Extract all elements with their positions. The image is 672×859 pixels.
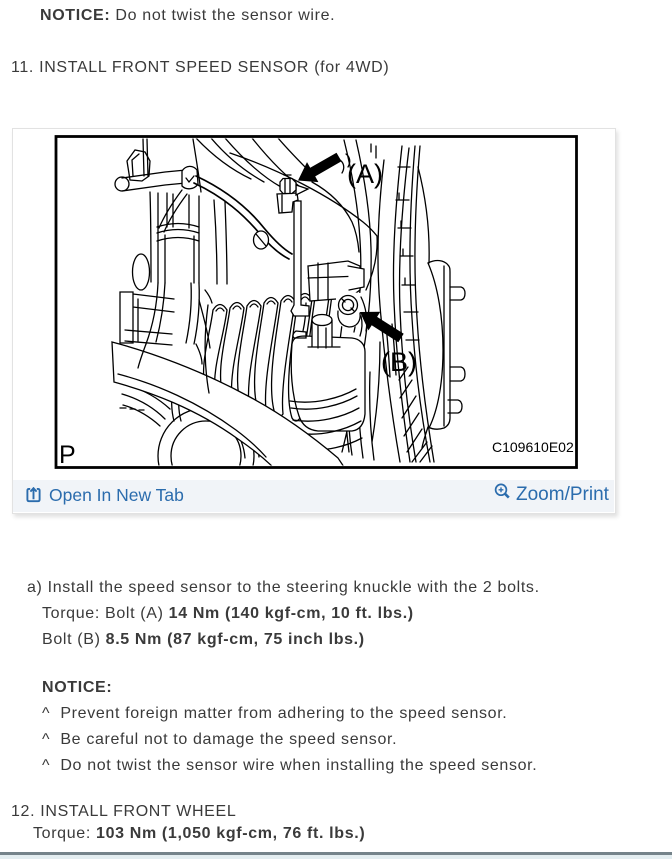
svg-text:P: P — [59, 441, 76, 469]
svg-text:(A): (A) — [347, 159, 383, 189]
svg-text:(B): (B) — [381, 347, 417, 377]
svg-text:C109610E02: C109610E02 — [492, 439, 574, 455]
